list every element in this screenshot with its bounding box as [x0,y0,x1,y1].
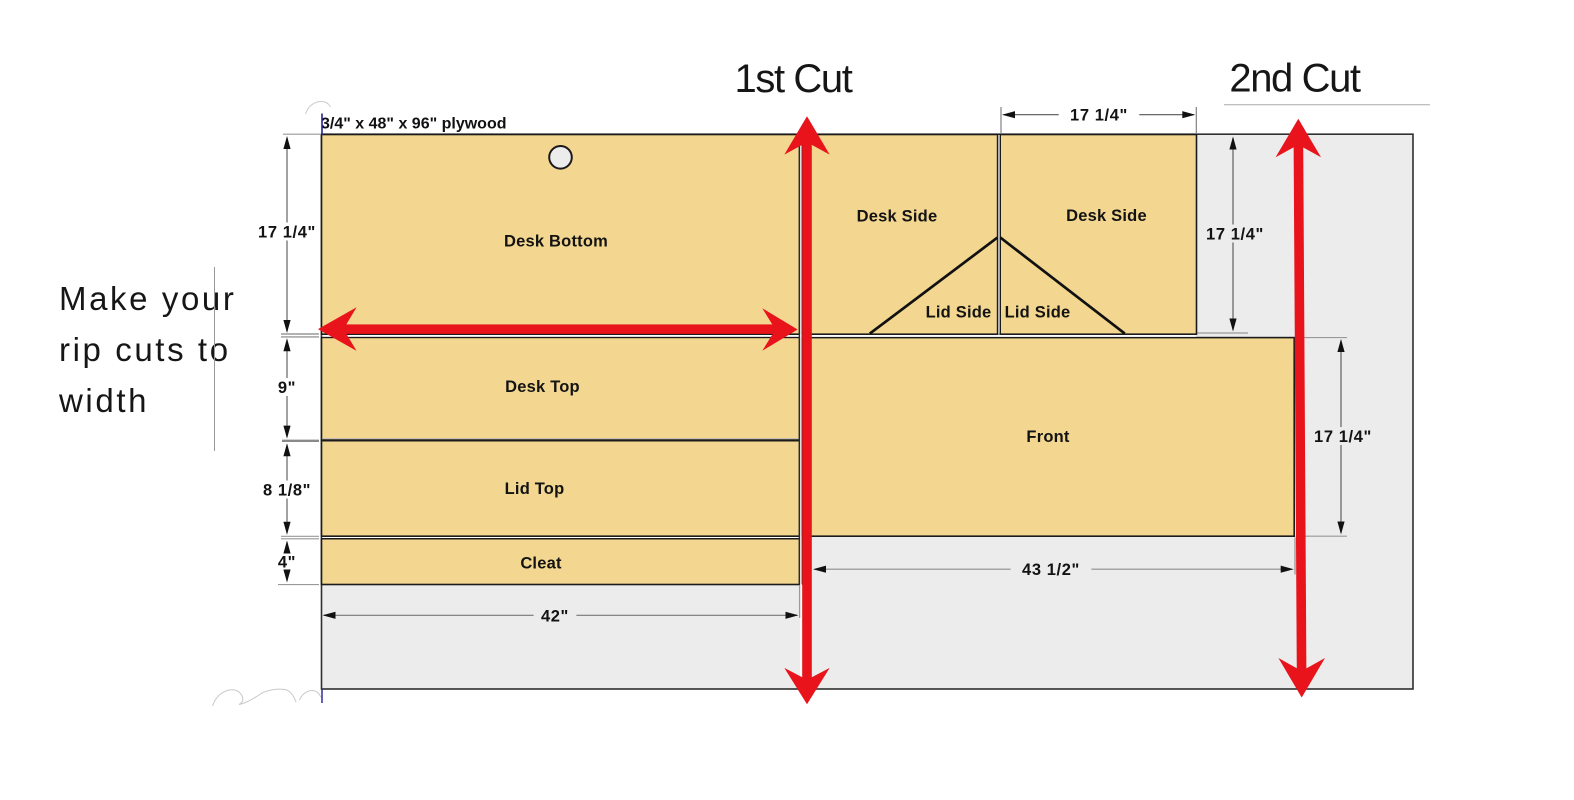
svg-text:rip cuts to: rip cuts to [59,331,231,368]
svg-text:Lid Top: Lid Top [505,480,565,498]
svg-text:Lid Side: Lid Side [926,304,992,322]
svg-text:1st Cut: 1st Cut [735,57,853,101]
svg-text:2nd Cut: 2nd Cut [1229,57,1361,101]
svg-text:17 1/4": 17 1/4" [1070,107,1128,125]
svg-text:Cleat: Cleat [520,555,562,573]
svg-text:17 1/4": 17 1/4" [258,224,316,242]
svg-text:43 1/2": 43 1/2" [1022,561,1080,579]
svg-text:width: width [58,382,149,419]
svg-text:Desk Top: Desk Top [505,378,580,396]
svg-text:Desk Side: Desk Side [857,207,938,225]
svg-text:Desk Side: Desk Side [1066,207,1147,225]
svg-text:8 1/8": 8 1/8" [263,482,311,500]
svg-text:Lid Side: Lid Side [1005,304,1071,322]
svg-text:4": 4" [278,554,296,572]
svg-text:Front: Front [1026,428,1069,446]
svg-text:17 1/4": 17 1/4" [1314,428,1372,446]
svg-text:17 1/4": 17 1/4" [1206,226,1264,244]
svg-text:Desk Bottom: Desk Bottom [504,233,608,251]
svg-text:3/4" x 48" x 96" plywood: 3/4" x 48" x 96" plywood [321,116,507,133]
svg-text:9": 9" [278,379,296,397]
svg-text:Make your: Make your [59,280,236,317]
svg-text:42": 42" [541,607,569,625]
